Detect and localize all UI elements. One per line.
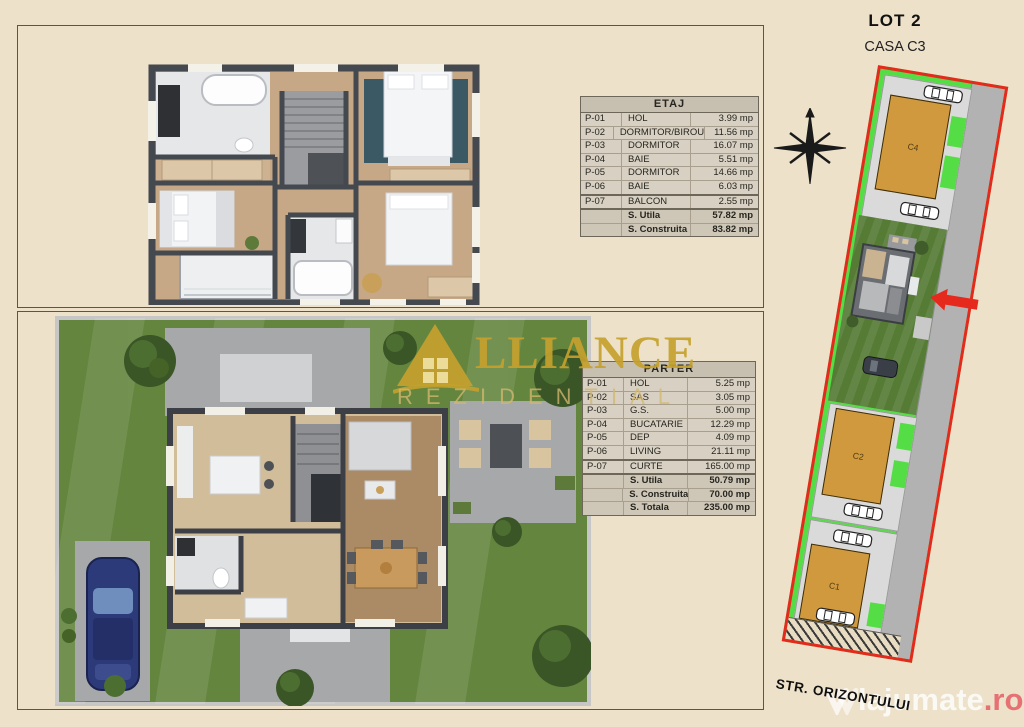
table-row: P-02DORMITOR/BIROU11.56 mp <box>581 126 758 140</box>
compass-rose-icon <box>772 108 848 188</box>
table-row: P-03DORMITOR16.07 mp <box>581 139 758 153</box>
etaj-stairs <box>282 91 346 187</box>
etaj-bathroom-topleft <box>156 72 270 157</box>
hall-and-bath <box>175 536 340 622</box>
lot-title: LOT 2 <box>828 11 962 31</box>
parter-house <box>166 407 446 627</box>
parter-table: PARTER P-01HOL5.25 mp P-02SAS3.05 mp P-0… <box>582 361 756 516</box>
parter-floor-plan-render <box>55 316 591 706</box>
table-row: P-06BAIE6.03 mp <box>581 180 758 194</box>
table-total-row: S. Construita83.82 mp <box>581 223 758 237</box>
table-total-row: S. Totala235.00 mp <box>583 501 755 515</box>
table-row: P-02SAS3.05 mp <box>583 391 755 405</box>
etaj-wardrobe <box>156 157 270 183</box>
table-total-row: S. Utila57.82 mp <box>581 208 758 223</box>
parter-table-title: PARTER <box>583 362 755 378</box>
table-row: P-07CURTE165.00 mp <box>583 459 755 474</box>
etaj-balcony <box>180 253 275 299</box>
etaj-floor-plan-render <box>140 57 492 305</box>
stairs <box>295 424 341 522</box>
etaj-bedroom-left <box>156 183 275 253</box>
living-room <box>345 416 441 622</box>
table-row: P-01HOL3.99 mp <box>581 113 758 126</box>
house-c2-label: C2 <box>852 450 864 462</box>
brochure-page: { "header": { "lot_title": "LOT 2", "cas… <box>0 0 1024 724</box>
kitchen <box>175 416 291 531</box>
table-row: P-06LIVING21.11 mp <box>583 445 755 459</box>
etaj-table: ETAJ P-01HOL3.99 mp P-02DORMITOR/BIROU11… <box>580 96 759 237</box>
table-row: P-03G.S.5.00 mp <box>583 404 755 418</box>
table-total-row: S. Utila50.79 mp <box>583 473 755 488</box>
casa-subtitle: CASA C3 <box>828 39 962 55</box>
etaj-bedroom-bottomright <box>356 183 476 303</box>
house-c4-label: C4 <box>907 141 919 153</box>
table-total-row: S. Construita70.00 mp <box>583 488 755 502</box>
table-row: P-05DEP4.09 mp <box>583 431 755 445</box>
etaj-table-title: ETAJ <box>581 97 758 113</box>
house-c1-label: C1 <box>828 580 840 592</box>
table-row: P-04BUCATARIE12.29 mp <box>583 418 755 432</box>
blue-car <box>87 558 139 690</box>
table-row: P-01HOL5.25 mp <box>583 378 755 391</box>
etaj-bedroom-topright <box>356 68 476 183</box>
table-row: P-05DORMITOR14.66 mp <box>581 166 758 180</box>
table-row: P-07BALCON2.55 mp <box>581 194 758 209</box>
etaj-bathroom-center <box>288 215 356 299</box>
table-row: P-04BAIE5.51 mp <box>581 153 758 167</box>
